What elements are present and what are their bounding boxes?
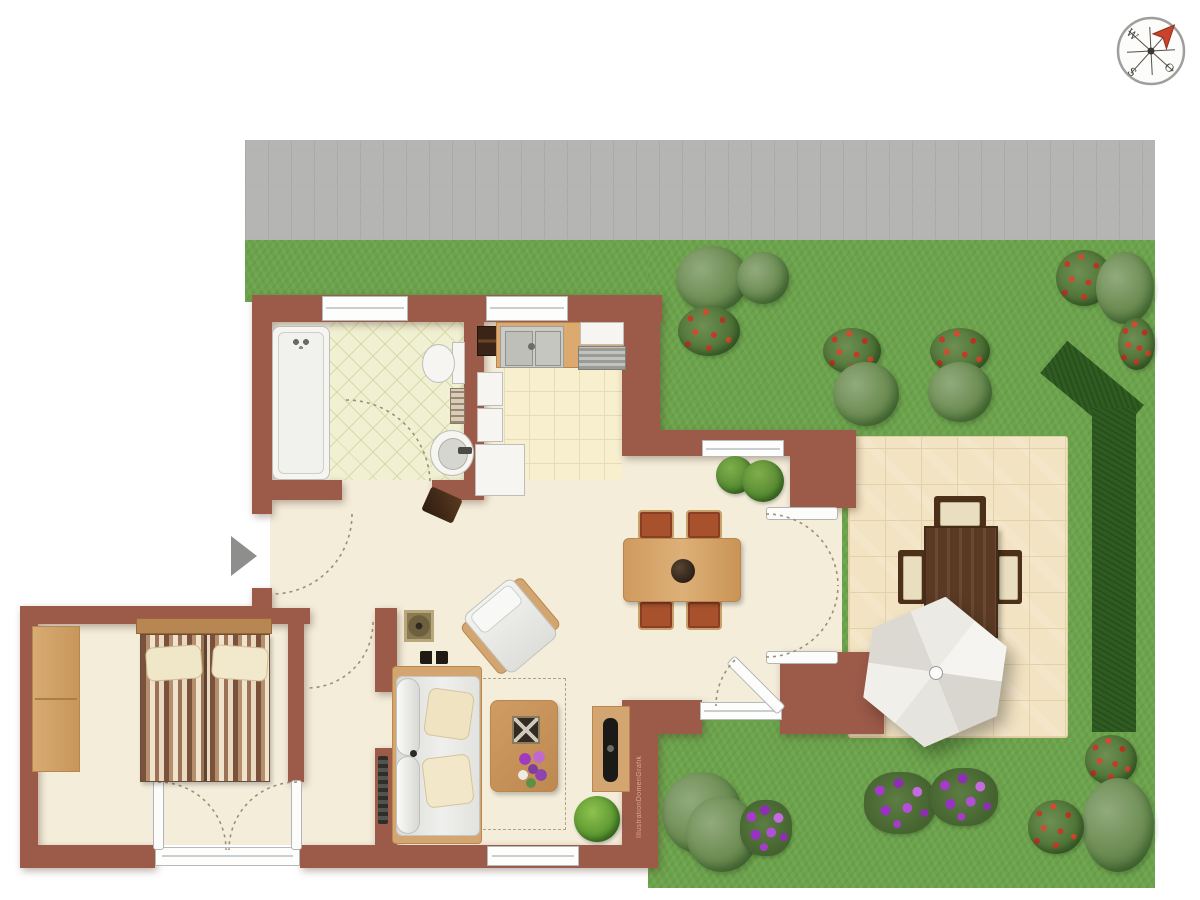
dining-chair — [638, 510, 674, 540]
bathtub-faucet — [293, 339, 309, 349]
dining-table — [623, 538, 741, 602]
indoor-plant-dining — [742, 460, 784, 502]
tv-sideboard — [592, 706, 630, 792]
dining-chair — [638, 600, 674, 630]
tv-flatscreen — [603, 718, 618, 782]
bed-center-split — [204, 635, 207, 781]
compass-rose: W O S — [1113, 13, 1189, 89]
parasol-pole — [929, 666, 943, 680]
refrigerator — [475, 444, 525, 496]
sink-faucet — [458, 447, 472, 454]
cooktop — [578, 346, 626, 370]
kitchen-shelf — [477, 326, 498, 356]
sink-basin-right — [535, 331, 561, 366]
wardrobe-divider — [35, 698, 77, 700]
sink-faucet-dot — [528, 343, 535, 350]
sofa-button — [410, 750, 417, 757]
table-bowl — [671, 559, 695, 583]
entrance-arrow-marker[interactable] — [231, 536, 257, 576]
tv-lens — [607, 745, 614, 752]
kitchen-cabinet — [477, 408, 503, 442]
sofa-pillow — [423, 687, 475, 741]
radiator — [378, 756, 388, 824]
sofa-back-cushion — [396, 678, 420, 756]
bed-pillow-right — [211, 644, 269, 682]
coffee-table — [490, 700, 558, 792]
kitchen-cabinet — [477, 372, 503, 406]
sofa-back-cushion — [396, 756, 420, 834]
indoor-plant-living — [574, 796, 620, 842]
parasol — [860, 596, 1010, 748]
patio-chair-cushion — [999, 556, 1018, 600]
towel-radiator — [450, 388, 465, 424]
patio-chair-cushion — [903, 556, 922, 600]
bathtub — [272, 326, 330, 480]
game-board — [512, 716, 540, 744]
kitchen-counter-white — [580, 322, 624, 345]
flower-vase — [515, 749, 551, 789]
toilet-bowl — [422, 344, 455, 383]
kitchen-sink-unit — [500, 326, 564, 368]
dining-chair — [686, 510, 722, 540]
sofa-pillow — [421, 753, 475, 808]
dining-chair — [686, 600, 722, 630]
watermark: IllustrationDomenGrafik — [636, 744, 649, 838]
sink-basin — [438, 438, 468, 470]
floor-plan-canvas: IllustrationDomenGrafik W O S — [0, 0, 1200, 900]
patio-chair-north — [934, 496, 986, 528]
bed-pillow-left — [145, 644, 203, 682]
bed-headboard — [136, 618, 272, 634]
remote-glasses-object — [420, 651, 448, 664]
wardrobe — [32, 626, 80, 772]
side-stool — [404, 610, 434, 642]
bathtub-inner — [278, 332, 324, 474]
sofa — [392, 666, 482, 844]
patio-chair-cushion — [940, 502, 980, 526]
